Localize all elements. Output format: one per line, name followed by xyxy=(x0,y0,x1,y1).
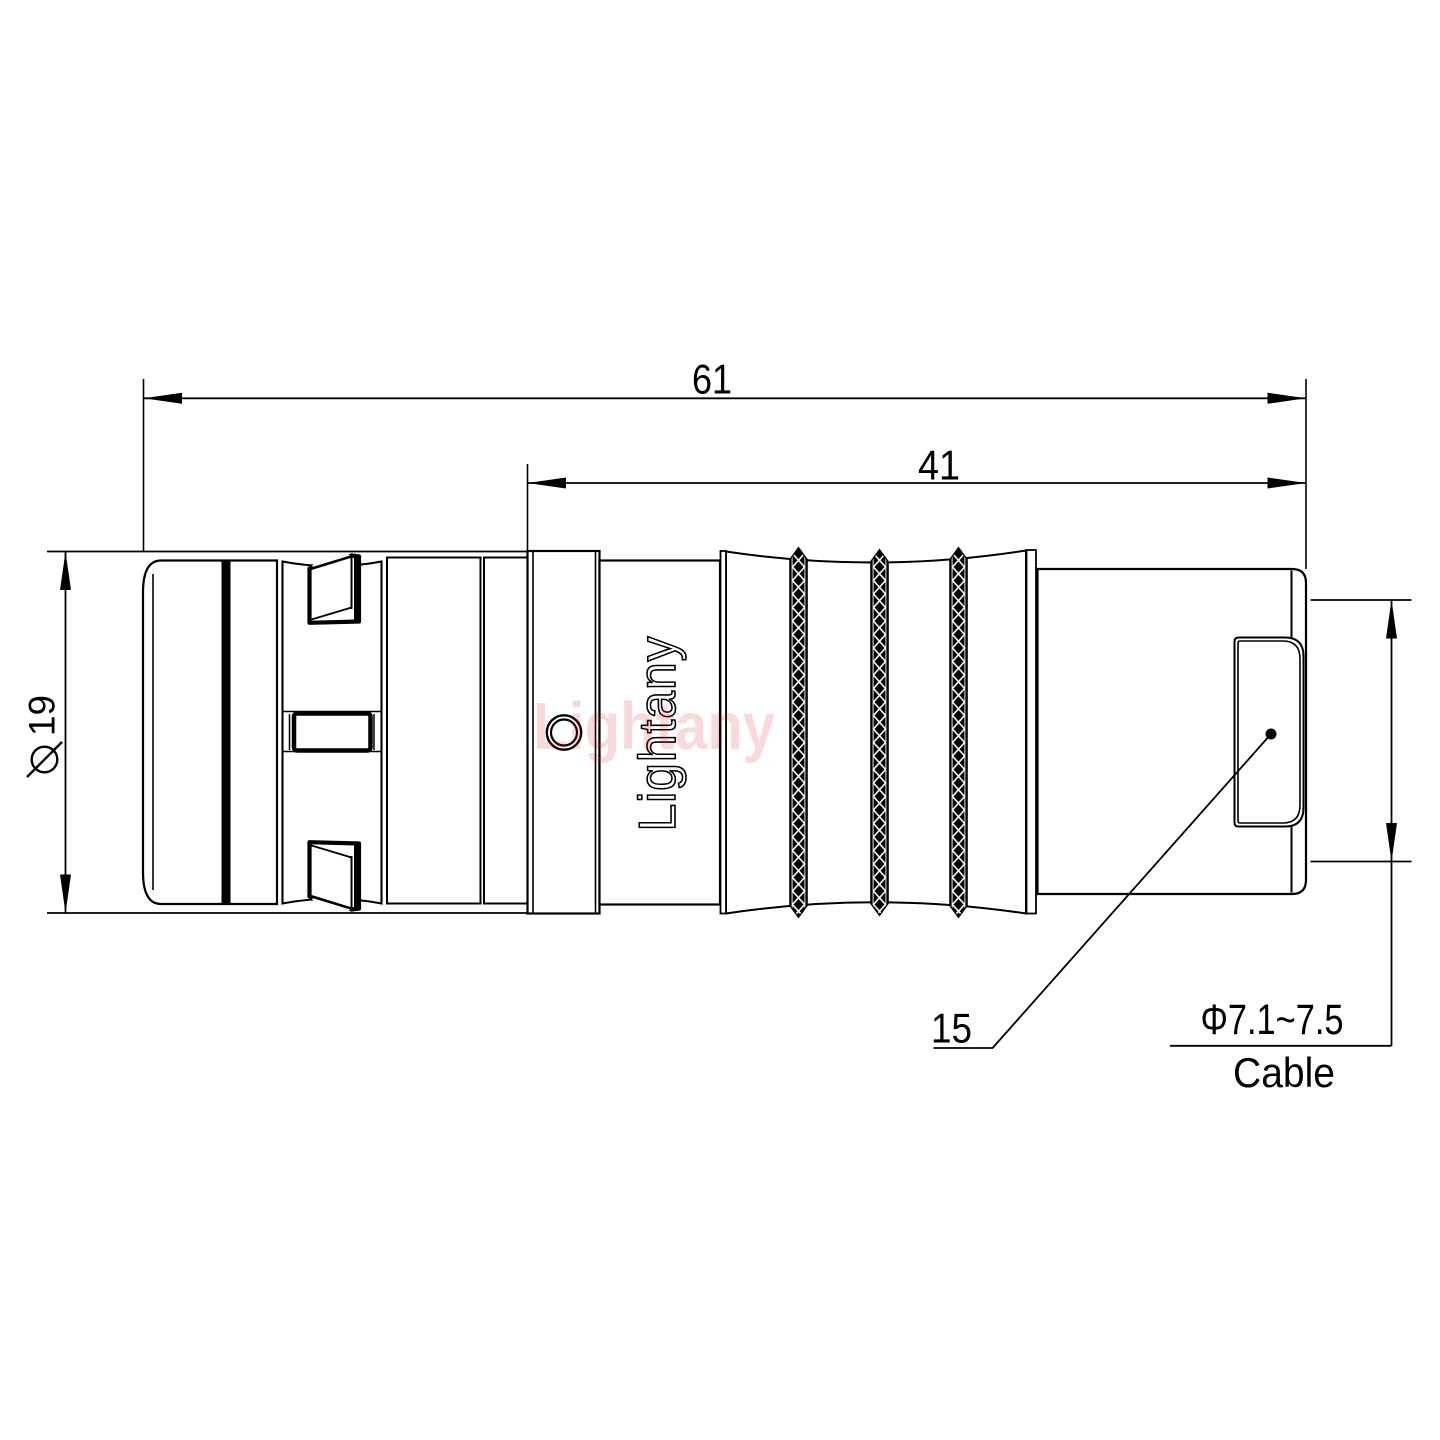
svg-text:15: 15 xyxy=(931,1005,972,1052)
svg-text:61: 61 xyxy=(692,356,732,403)
svg-text:41: 41 xyxy=(918,442,960,489)
svg-text:19: 19 xyxy=(22,695,63,736)
svg-text:Cable: Cable xyxy=(1233,1049,1335,1096)
svg-text:Lightany: Lightany xyxy=(533,689,775,764)
svg-text:Φ7.1~7.5: Φ7.1~7.5 xyxy=(1201,996,1344,1044)
